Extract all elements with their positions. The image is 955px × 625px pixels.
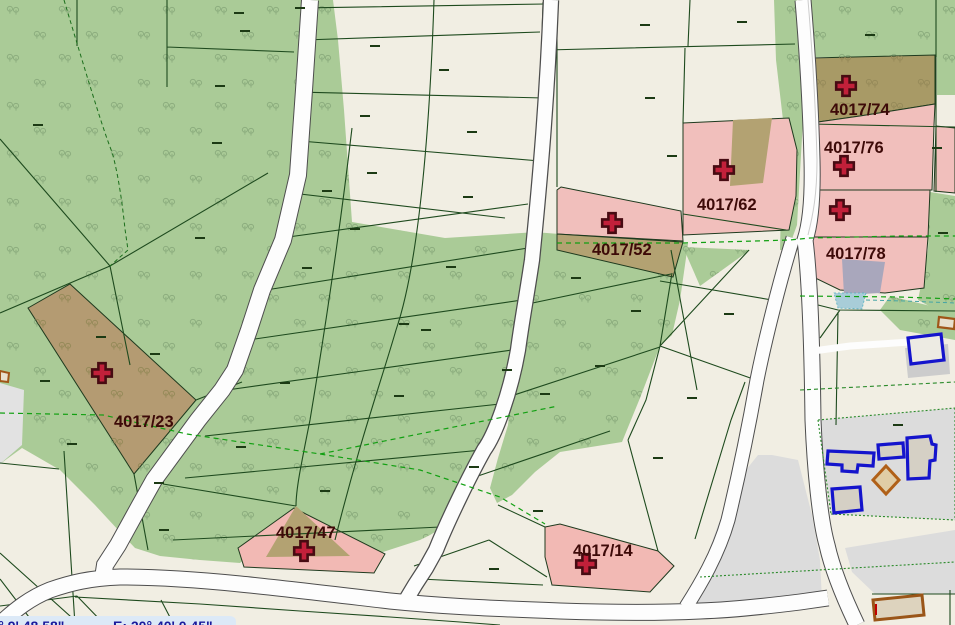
svg-text:E: 20° 40' 0.45": E: 20° 40' 0.45" — [113, 618, 213, 625]
svg-text:4017/62: 4017/62 — [697, 196, 757, 214]
svg-text:4017/23: 4017/23 — [114, 413, 174, 431]
svg-text:4017/78: 4017/78 — [826, 245, 886, 263]
svg-text:4017/52: 4017/52 — [592, 241, 652, 259]
svg-text:4017/76: 4017/76 — [824, 139, 884, 157]
svg-text:4017/14: 4017/14 — [573, 542, 633, 560]
svg-text:N: 44° 9' 48.58": N: 44° 9' 48.58" — [0, 618, 64, 625]
svg-text:4017/74: 4017/74 — [830, 101, 890, 119]
svg-text:4017/47: 4017/47 — [276, 524, 336, 542]
